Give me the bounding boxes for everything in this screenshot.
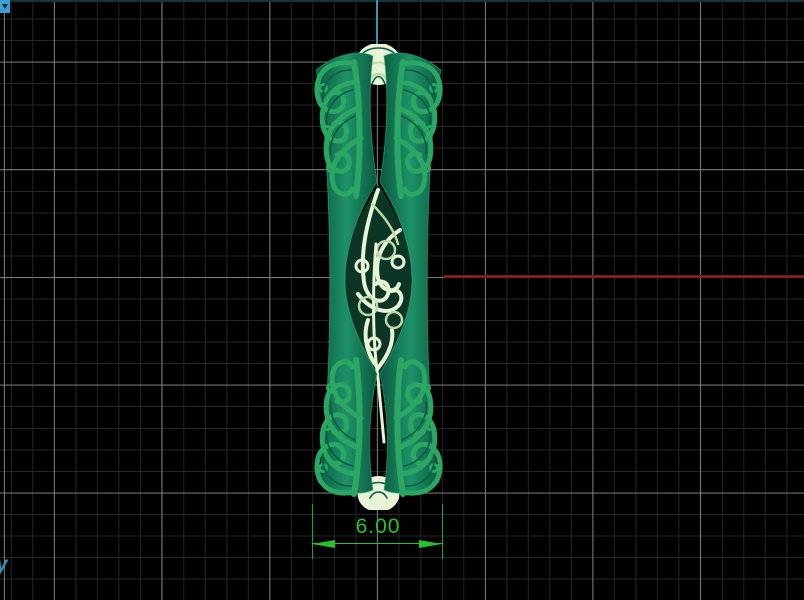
viewport-menu-button[interactable] — [0, 0, 10, 13]
cad-viewport: y — [0, 0, 804, 600]
dimension-extension-line-left — [312, 504, 313, 559]
y-axis-label: y — [0, 553, 8, 577]
dimension-extension-line-right — [442, 504, 443, 559]
dimension-value-label: 6.00 — [318, 515, 438, 539]
vertical-axis-line — [376, 0, 378, 47]
dimension-arrow-left-icon — [312, 540, 335, 548]
ring-model[interactable] — [310, 44, 447, 510]
viewport-dropdown-icon — [2, 4, 8, 9]
viewport-top-border — [0, 0, 804, 2]
dimension-arrow-right-icon — [419, 540, 442, 548]
horizontal-axis-line-red — [444, 275, 804, 278]
